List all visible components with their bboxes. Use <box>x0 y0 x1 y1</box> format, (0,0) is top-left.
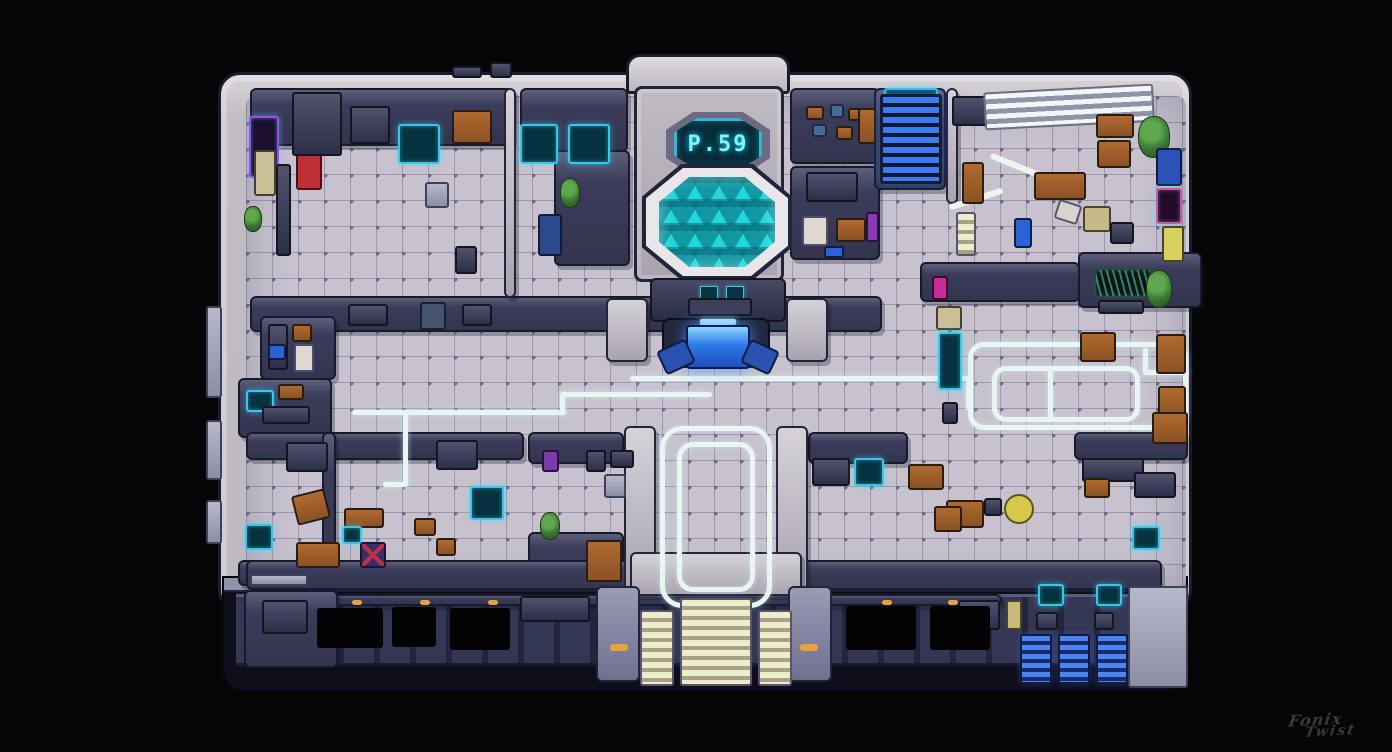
table-track-b <box>1152 412 1188 444</box>
desk-chair-set <box>292 92 342 156</box>
hull-fin-b <box>206 420 222 480</box>
desk-far-a <box>1096 114 1134 138</box>
light-a <box>352 600 362 605</box>
console-c <box>520 124 558 164</box>
stool-b <box>436 538 456 556</box>
desk-br <box>1134 472 1176 498</box>
shutter-c <box>1096 634 1128 684</box>
mini-console <box>455 246 477 274</box>
wall-console-b <box>462 304 492 326</box>
artist-signature: Fonix Twist <box>1285 709 1392 740</box>
console-desk-bl <box>286 442 328 472</box>
console-d <box>568 124 610 164</box>
purple-locker <box>866 212 879 242</box>
shutter-a <box>1020 634 1052 684</box>
blue-screen-br <box>1132 526 1160 550</box>
pillar-light-right <box>800 644 818 651</box>
stairs-center <box>680 598 752 686</box>
kitchen-cabinet <box>292 324 312 342</box>
entry-pillar-right <box>788 586 832 682</box>
crate-a <box>806 106 824 120</box>
crate-e <box>836 126 853 140</box>
object-layer <box>0 0 1392 752</box>
console-low <box>1098 300 1144 314</box>
blue-chair <box>1014 218 1032 248</box>
table-cr-a <box>908 464 944 490</box>
wood-hutch <box>452 110 492 144</box>
strap-crate <box>934 506 962 532</box>
shelf-tr <box>962 162 984 204</box>
x-crate <box>360 542 386 568</box>
door-mid <box>420 302 446 330</box>
copier <box>604 474 626 498</box>
blue-crate <box>268 344 286 360</box>
stairs-right <box>758 610 792 686</box>
magenta-locker <box>932 276 948 300</box>
shelf-blue <box>538 214 562 256</box>
service-droid <box>425 182 449 208</box>
bed-bl <box>296 542 340 568</box>
opening-c <box>450 608 510 650</box>
chair-cr <box>984 498 1002 516</box>
plant-right <box>1146 270 1172 308</box>
kitchen-fridge <box>294 344 314 372</box>
locker-brown <box>858 108 876 144</box>
stairs-left <box>640 610 674 686</box>
yellow-machine <box>1162 226 1184 262</box>
graffiti-screen <box>1094 268 1152 298</box>
hull-fin-c <box>206 500 222 544</box>
wardrobe <box>586 540 622 582</box>
machine-block <box>806 172 858 202</box>
dresser-right-a <box>1156 334 1186 374</box>
mini-screen-a <box>1036 612 1058 630</box>
cyan-panel-a <box>1038 584 1064 606</box>
console-cr-b <box>854 458 884 486</box>
ladder <box>956 212 976 256</box>
neon-vending <box>1156 188 1182 224</box>
cyan-screen-bl <box>245 524 273 550</box>
art-frame-a <box>586 450 606 472</box>
entry-pillar-left <box>596 586 640 682</box>
seat-row <box>262 406 310 424</box>
shutter-b <box>1058 634 1090 684</box>
light-b <box>420 600 430 605</box>
stool-a <box>414 518 436 536</box>
cyan-panel-b <box>1096 584 1122 606</box>
dresser-br <box>1084 478 1110 498</box>
game-viewport: P.59 Fonix Twist <box>0 0 1392 752</box>
pillar-light-left <box>610 644 628 651</box>
light-c <box>488 600 498 605</box>
shelf-blue-tr <box>1156 148 1182 186</box>
bench-row <box>250 574 308 586</box>
mini-device <box>824 246 844 258</box>
mini-screen-b <box>1094 612 1114 630</box>
small-tv <box>1110 222 1134 244</box>
hull-fin-a <box>206 306 222 398</box>
counter-wood <box>836 218 866 242</box>
opening-b <box>392 607 436 647</box>
facade-right <box>1128 586 1188 688</box>
machine-a <box>262 600 308 634</box>
blue-staircase <box>880 94 942 184</box>
round-table-yellow <box>1004 494 1034 524</box>
mini-unit <box>942 402 958 424</box>
blue-terminal <box>938 332 962 390</box>
atm-terminal <box>470 486 504 520</box>
plant-mid-top <box>560 178 580 208</box>
console-cr-a <box>812 458 850 486</box>
desk-far-b <box>1097 140 1131 168</box>
roof-antenna-a <box>452 66 482 78</box>
light-d <box>882 600 892 605</box>
tan-console <box>936 306 962 330</box>
opening-d <box>846 606 916 650</box>
machine-b <box>520 596 590 622</box>
console-midroom <box>436 440 478 470</box>
plant-centerbottom <box>540 512 560 540</box>
monitor-cbl <box>342 526 362 544</box>
opening-a <box>317 608 383 648</box>
desk-cbl <box>344 508 384 528</box>
locker-strip <box>276 164 291 256</box>
tan-bed <box>254 150 276 196</box>
chair-white <box>1053 199 1082 225</box>
crate-d <box>812 124 827 137</box>
fridge-right <box>802 216 828 246</box>
light-e <box>948 600 958 605</box>
desk-tr <box>1034 172 1086 200</box>
crate-b <box>830 104 844 118</box>
khaki-panel <box>1006 600 1022 630</box>
purple-cabinet <box>542 450 559 472</box>
table-track-a <box>1080 332 1116 362</box>
roof-antenna-b <box>490 62 512 78</box>
desk-midleft <box>278 384 304 400</box>
tilt-crate <box>291 488 331 525</box>
wall-console-a <box>348 304 388 326</box>
console-b <box>398 124 440 164</box>
beige-crate <box>1083 206 1111 232</box>
opening-e <box>930 606 990 650</box>
plant-left <box>244 206 262 232</box>
art-frame-b <box>610 450 634 468</box>
console-a <box>350 106 390 144</box>
